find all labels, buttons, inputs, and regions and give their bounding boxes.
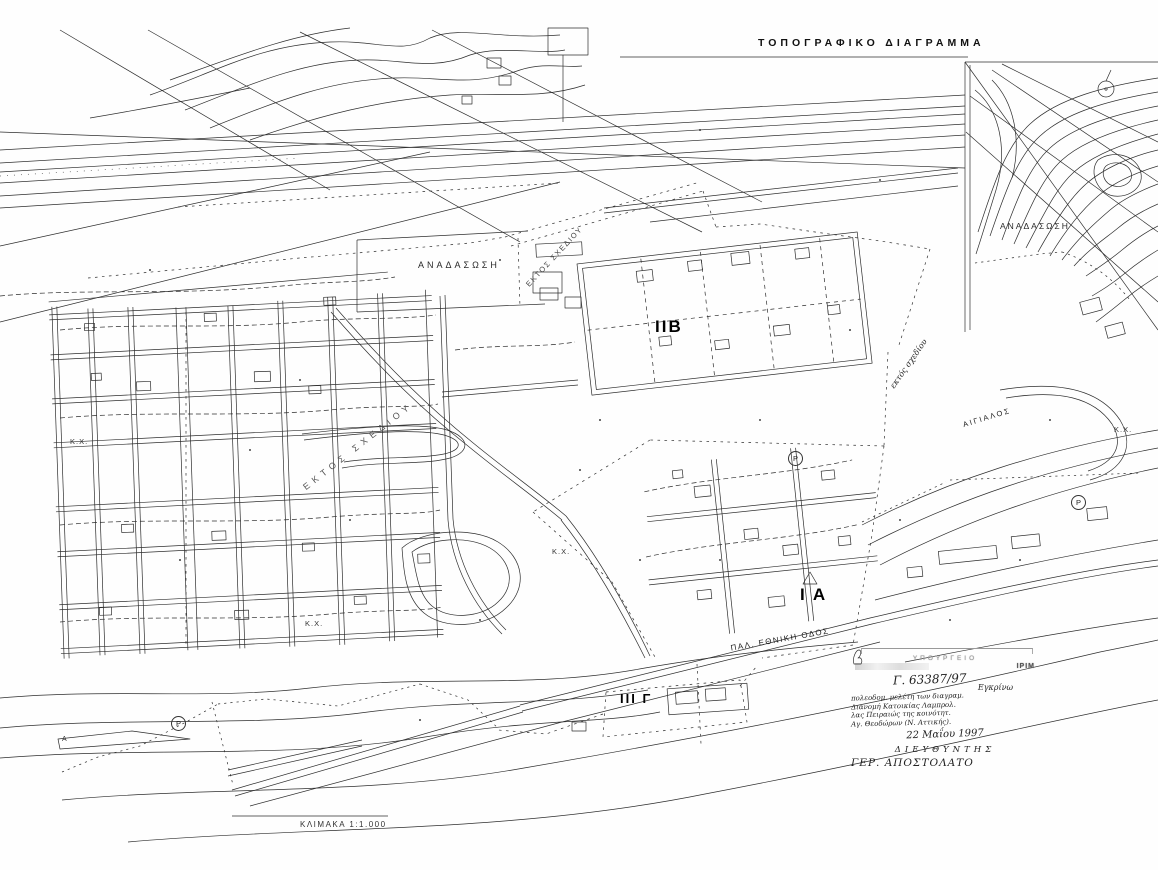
zone-label-iiig: ΙΙΙ Γ	[620, 692, 652, 705]
topographic-map-sheet: ΤΟΠΟΓΡΑΦΙΚΟ ΔΙΑΓΡΑΜΜΑ ΑΝΑΔΑΣΩΣΗ ΑΝΑΔΑΣΩΣ…	[0, 0, 1158, 870]
contours-top-left	[90, 28, 585, 140]
stamp-ministry-header: ΥΠΟΥΡΓΕΙΟ	[851, 655, 1039, 662]
plan-boundary-dotted	[88, 182, 930, 744]
zone-label-ia: Ι Α	[800, 586, 827, 603]
kx-label-4: Κ.Χ.	[552, 548, 570, 556]
approval-stamp: ΥΠΟΥΡΓΕΙΟ ΙΡΙΜ Γ. 63387/97 Εγκρίνω πολεο…	[851, 648, 1039, 769]
stamp-border	[861, 648, 1033, 654]
block-iib	[577, 232, 872, 395]
street-grid-left	[48, 271, 444, 659]
point-label-a: A	[62, 736, 68, 743]
contours-top-right	[975, 70, 1158, 343]
kx-label-3: Κ.Χ.	[1114, 426, 1132, 434]
scan-speckles	[149, 129, 1050, 720]
stamp-protocol-number: Γ. 63387/97	[893, 668, 1039, 687]
block-iiig	[667, 683, 749, 715]
stamp-faded-smudge	[855, 663, 929, 670]
roads-right	[862, 386, 1158, 600]
stamp-date: 22 Μαΐου 1997	[851, 726, 1039, 744]
parking-symbol-right: P	[1071, 495, 1086, 510]
railway-corridor	[0, 95, 965, 222]
survey-lines	[0, 30, 1158, 330]
signature-mark-icon	[851, 648, 865, 666]
zone-label-iib: ΙΙΒ	[655, 318, 683, 335]
map-title: ΤΟΠΟΓΡΑΦΙΚΟ ΔΙΑΓΡΑΜΜΑ	[758, 38, 972, 49]
anadasosi-block	[357, 231, 582, 312]
kx-label-1: Κ.Χ.	[70, 438, 88, 446]
anadasosi-label-right: ΑΝΑΔΑΣΩΣΗ	[1000, 222, 1070, 231]
parking-symbol-left: P	[171, 716, 186, 731]
parking-symbol-central: P	[788, 451, 803, 466]
stamp-director-title: ΔΙΕΥΘΥΝΤΗΣ	[851, 745, 1039, 755]
anadasosi-label-central: ΑΝΑΔΑΣΩΣΗ	[418, 261, 500, 270]
scale-label: ΚΛΙΜΑΚΑ 1:1.000	[300, 821, 387, 829]
stamp-signature-name: ΓΕΡ. ΑΠΟΣΤΟΛΑΤΟ	[851, 757, 974, 769]
kx-label-2: Κ.Χ.	[305, 620, 323, 628]
district-ia	[636, 440, 888, 642]
